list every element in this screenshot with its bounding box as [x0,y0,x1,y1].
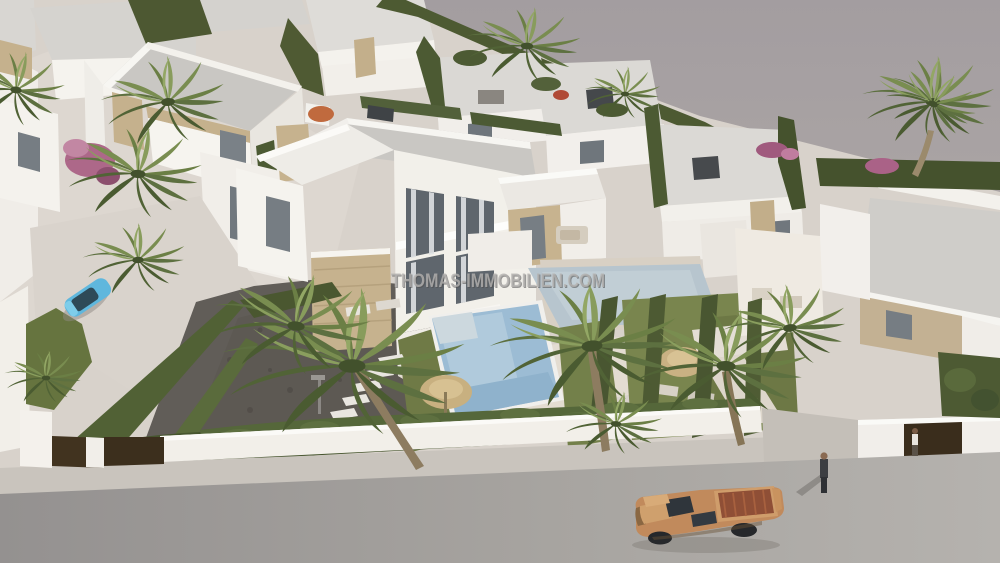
svg-text:THOMAS-IMMOBILIEN.COM: THOMAS-IMMOBILIEN.COM [391,270,605,292]
